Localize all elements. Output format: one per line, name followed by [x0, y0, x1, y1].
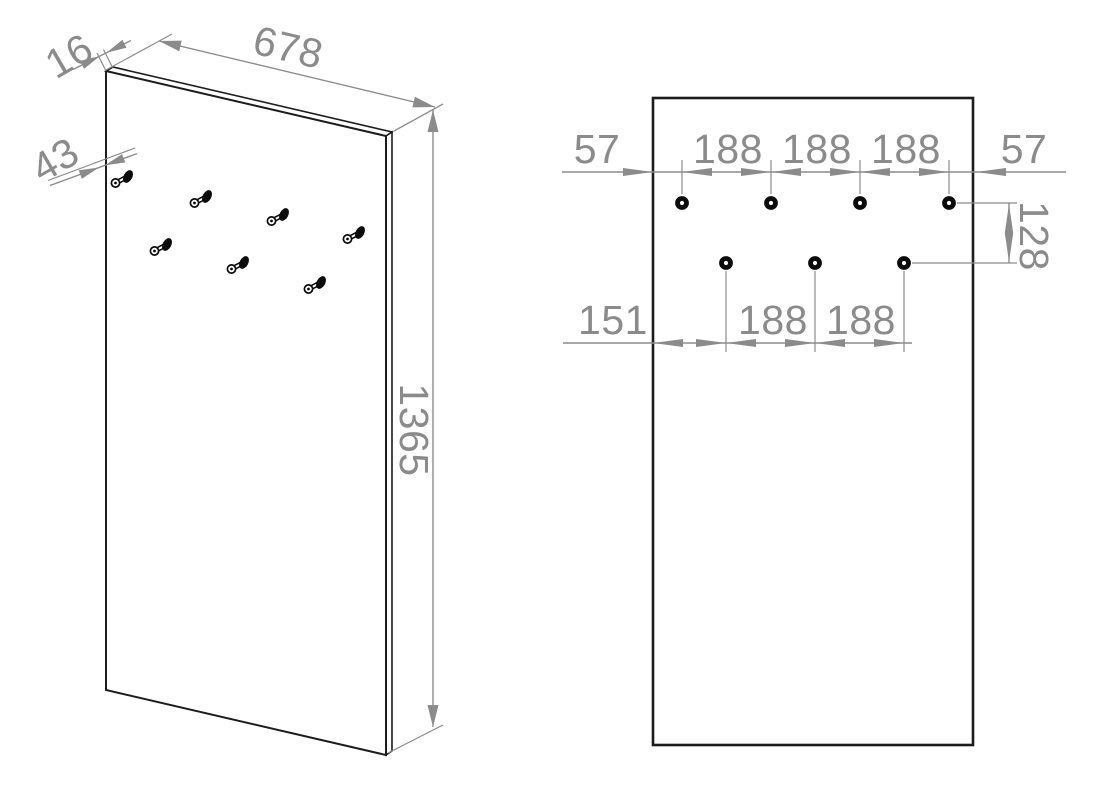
dim-thickness-label: 16 — [37, 24, 100, 87]
dim-top-label: 57 — [1001, 126, 1048, 172]
dim-height-label: 1365 — [391, 383, 437, 476]
dim-top-label: 188 — [782, 126, 852, 172]
iso-view: 16 678 43 1365 — [23, 17, 443, 755]
technical-drawing-page: 16 678 43 1365 — [0, 0, 1100, 797]
front-view: 57 188 188 188 57 128 151 — [562, 98, 1066, 745]
hook-hole — [942, 196, 956, 210]
technical-drawing-canvas: 16 678 43 1365 — [0, 0, 1100, 797]
dim-height: 1365 — [388, 104, 443, 753]
front-panel-outline — [653, 98, 973, 745]
hook-hole — [719, 256, 733, 270]
dim-row-spacing-label: 128 — [1011, 201, 1057, 271]
hook-hole — [853, 196, 867, 210]
panel-front-face — [106, 71, 386, 755]
dim-bottom-label: 188 — [826, 297, 896, 343]
iso-panel — [106, 67, 392, 755]
dim-bottom-label: 151 — [578, 297, 648, 343]
hook-hole — [897, 256, 911, 270]
dim-width-label: 678 — [249, 17, 328, 78]
dim-top-label: 188 — [871, 126, 941, 172]
hook-hole — [808, 256, 822, 270]
dim-hook-depth-label: 43 — [23, 128, 86, 191]
hook-hole — [764, 196, 778, 210]
dim-bottom-label: 188 — [738, 297, 808, 343]
dim-top-label: 188 — [693, 126, 763, 172]
dim-top-label: 57 — [574, 126, 621, 172]
hook-hole — [675, 196, 689, 210]
